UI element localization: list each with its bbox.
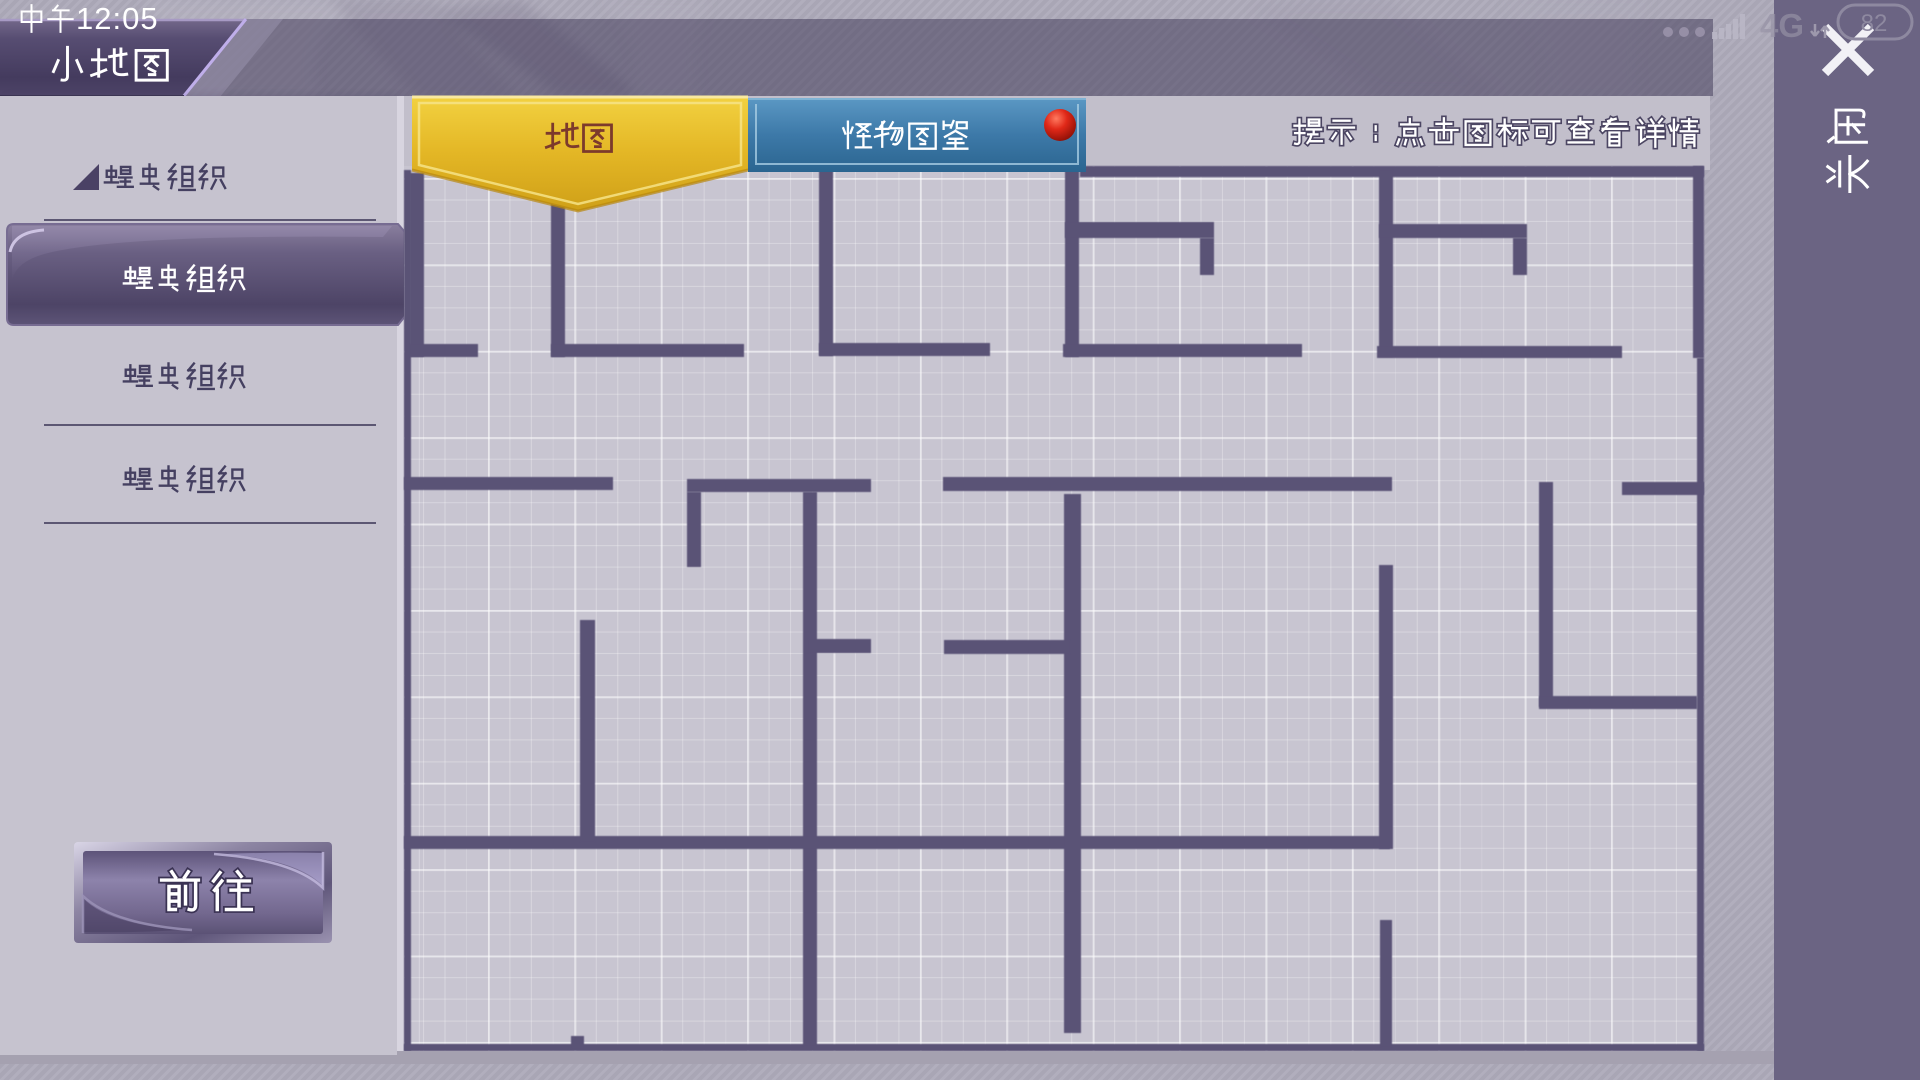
svg-text:82: 82 <box>1861 10 1888 37</box>
